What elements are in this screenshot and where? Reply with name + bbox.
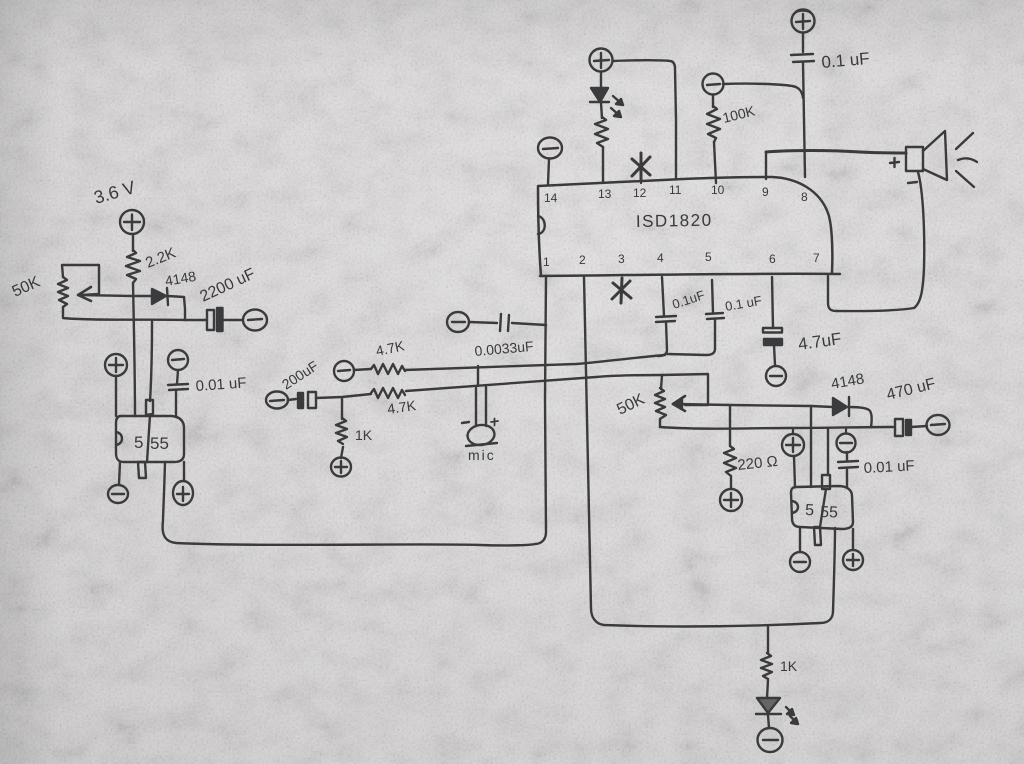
svg-text:55: 55 — [150, 434, 169, 453]
svg-text:1K: 1K — [780, 658, 798, 674]
svg-text:2: 2 — [579, 253, 586, 267]
svg-text:1K: 1K — [355, 427, 373, 443]
svg-text:1: 1 — [543, 255, 550, 269]
svg-text:12: 12 — [633, 186, 647, 200]
svg-text:5: 5 — [134, 433, 143, 452]
svg-text:5: 5 — [705, 250, 712, 264]
svg-text:5: 5 — [805, 502, 815, 519]
svg-text:7: 7 — [813, 251, 820, 265]
svg-text:6: 6 — [769, 252, 776, 266]
svg-text:0.01 uF: 0.01 uF — [195, 374, 247, 395]
svg-text:ISD1820: ISD1820 — [636, 211, 713, 231]
svg-text:0.01 uF: 0.01 uF — [863, 457, 915, 477]
svg-text:4: 4 — [657, 251, 664, 265]
svg-text:11: 11 — [669, 183, 682, 197]
svg-text:mic: mic — [468, 447, 496, 463]
svg-text:3: 3 — [618, 252, 625, 266]
svg-text:13: 13 — [598, 187, 612, 201]
svg-text:9: 9 — [762, 185, 769, 199]
svg-text:8: 8 — [801, 190, 808, 204]
svg-text:14: 14 — [544, 191, 558, 205]
svg-text:10: 10 — [711, 183, 725, 197]
